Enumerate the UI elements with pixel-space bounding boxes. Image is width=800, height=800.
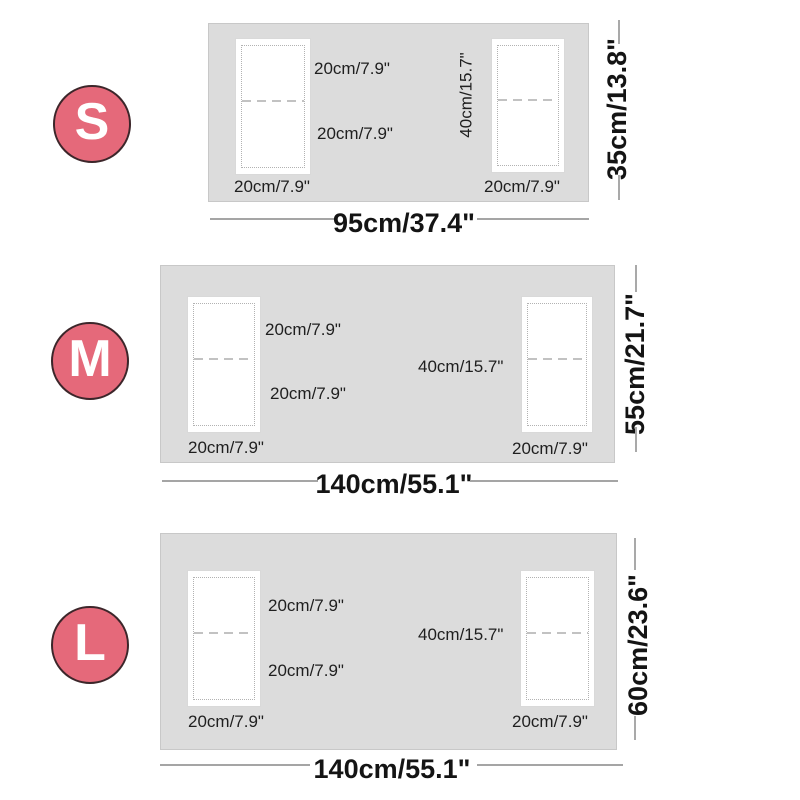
stitch-border <box>497 45 559 166</box>
label-left-mat-width-l: 20cm/7.9" <box>188 713 264 732</box>
label-mat-top-half-l: 20cm/7.9" <box>268 597 344 616</box>
dimension-line <box>634 538 636 570</box>
stitch-border <box>193 303 255 426</box>
label-table-height-l: 60cm/23.6" <box>624 574 654 716</box>
label-table-width-m: 140cm/55.1" <box>316 470 473 500</box>
label-mat-bottom-half-s: 20cm/7.9" <box>317 125 393 144</box>
placemat-left-m <box>187 296 261 433</box>
label-right-mat-width-s: 20cm/7.9" <box>484 178 560 197</box>
label-table-height-m: 55cm/21.7" <box>621 293 651 435</box>
placemat-right-m <box>521 296 593 433</box>
fold-line <box>527 632 588 634</box>
dimension-line <box>210 218 336 220</box>
stitch-border <box>241 45 305 168</box>
dimension-line <box>635 265 637 292</box>
label-table-width-s: 95cm/37.4" <box>333 209 475 239</box>
dimension-line <box>470 480 618 482</box>
placemat-left-s <box>235 38 311 175</box>
dimension-line <box>162 480 318 482</box>
dimension-line <box>634 716 636 740</box>
fold-line <box>194 632 254 634</box>
fold-line <box>242 100 304 102</box>
size-badge-l: L <box>51 606 129 684</box>
dimension-line <box>618 175 620 200</box>
label-mat-length-m: 40cm/15.7" <box>418 358 503 377</box>
placemat-right-l <box>520 570 595 707</box>
size-badge-m: M <box>51 322 129 400</box>
label-left-mat-width-m: 20cm/7.9" <box>188 439 264 458</box>
label-mat-bottom-half-l: 20cm/7.9" <box>268 662 344 681</box>
label-right-mat-width-l: 20cm/7.9" <box>512 713 588 732</box>
label-mat-bottom-half-m: 20cm/7.9" <box>270 385 346 404</box>
fold-line <box>528 358 586 360</box>
label-mat-top-half-m: 20cm/7.9" <box>265 321 341 340</box>
dimension-line <box>635 427 637 452</box>
stitch-border <box>526 577 589 700</box>
stitch-border <box>527 303 587 426</box>
fold-line <box>498 99 558 101</box>
label-mat-length-s: 40cm/15.7" <box>458 52 477 137</box>
label-mat-length-l: 40cm/15.7" <box>418 626 503 645</box>
fold-line <box>194 358 254 360</box>
dimension-line <box>477 218 589 220</box>
dimension-line <box>160 764 310 766</box>
label-right-mat-width-m: 20cm/7.9" <box>512 440 588 459</box>
placemat-right-s <box>491 38 565 173</box>
size-badge-s: S <box>53 85 131 163</box>
stitch-border <box>193 577 255 700</box>
label-left-mat-width-s: 20cm/7.9" <box>234 178 310 197</box>
label-table-width-l: 140cm/55.1" <box>314 755 471 785</box>
label-table-height-s: 35cm/13.8" <box>603 38 633 180</box>
dimension-line <box>477 764 623 766</box>
label-mat-top-half-s: 20cm/7.9" <box>314 60 390 79</box>
size-chart: S 20cm/7.9" 20cm/7.9" 20cm/7.9" 20cm/7.9… <box>0 0 800 800</box>
placemat-left-l <box>187 570 261 707</box>
